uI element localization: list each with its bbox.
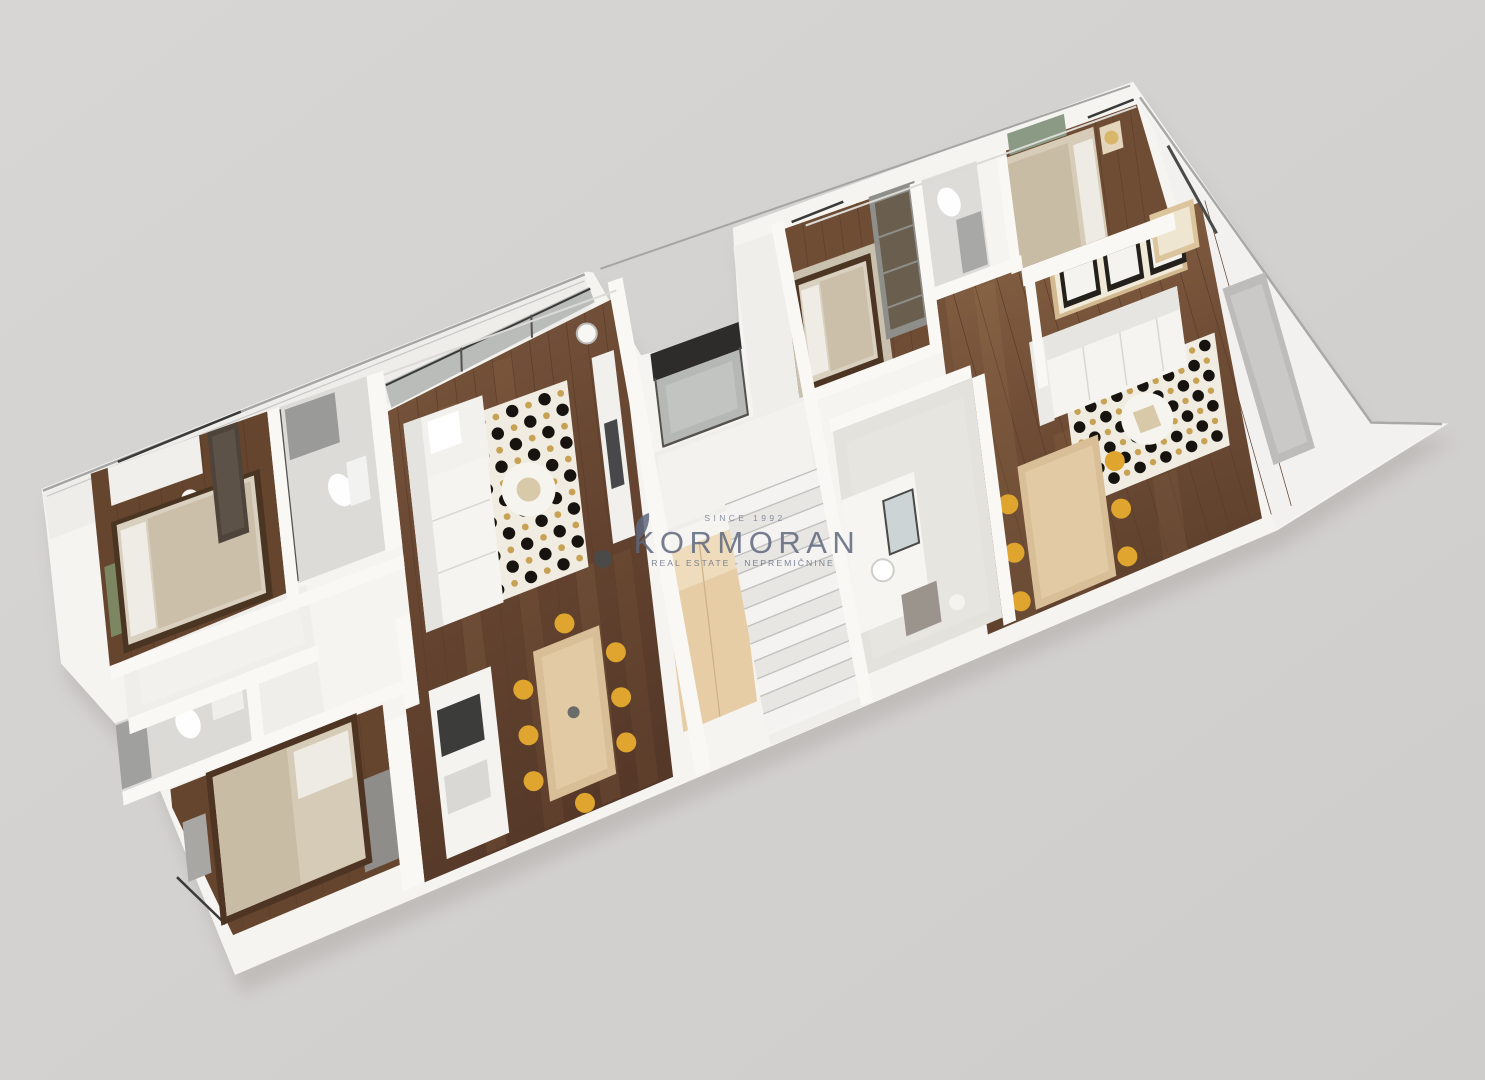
svg-text:KORMORAN: KORMORAN (634, 525, 861, 560)
svg-text:SINCE 1992: SINCE 1992 (704, 513, 785, 523)
svg-text:REAL ESTATE - NEPREMIČNINE: REAL ESTATE - NEPREMIČNINE (651, 558, 835, 568)
